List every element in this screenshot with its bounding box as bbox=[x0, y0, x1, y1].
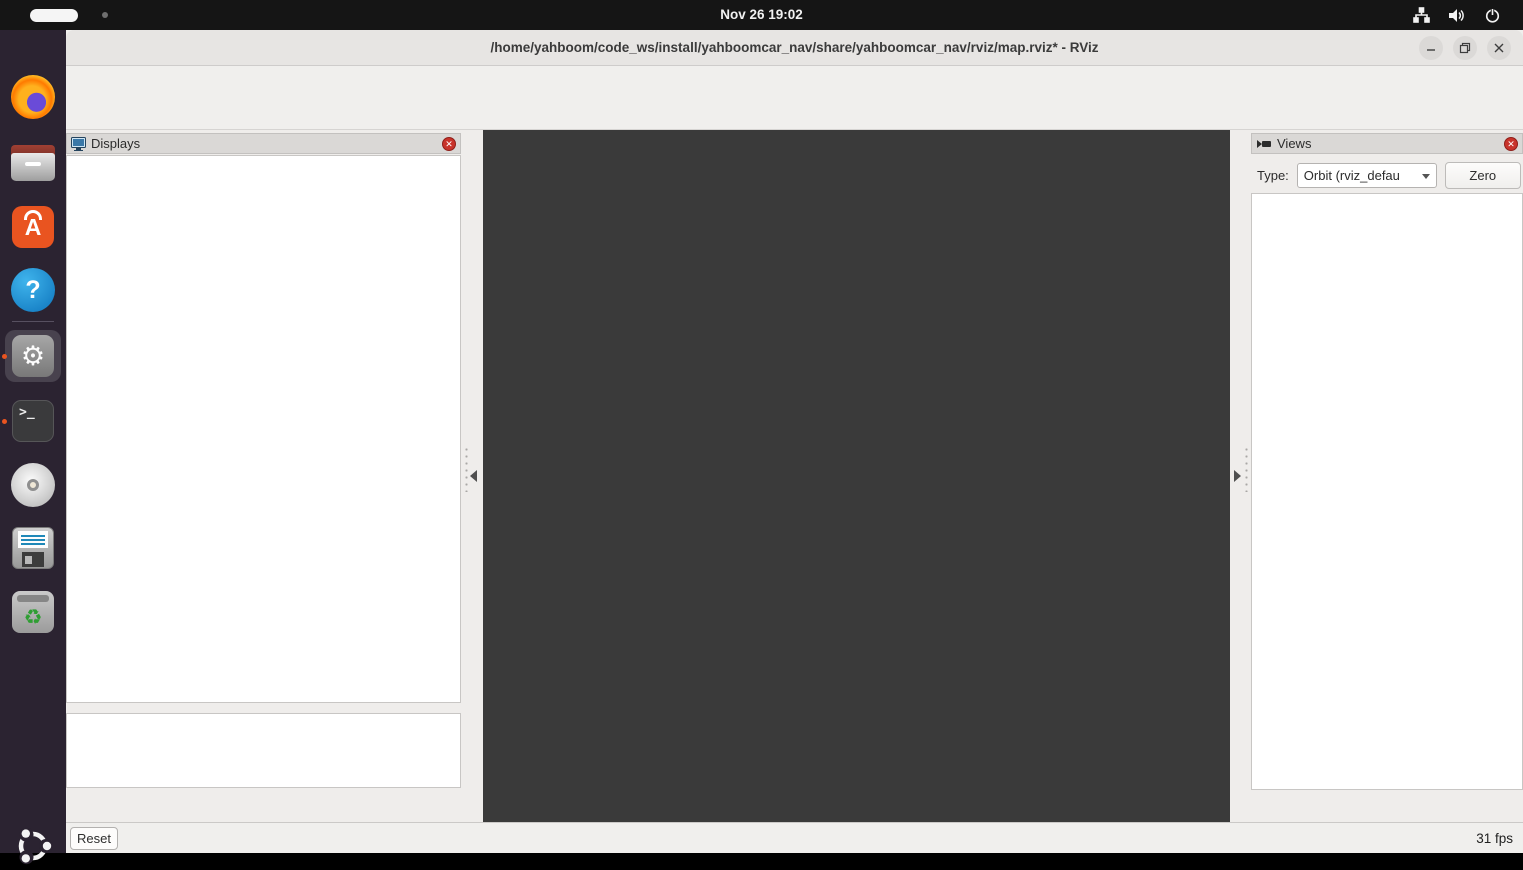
chevron-down-icon bbox=[1422, 174, 1430, 179]
screen: Nov 26 19:02 A bbox=[0, 0, 1523, 853]
dock-terminal[interactable]: >_ bbox=[9, 397, 57, 445]
collapse-right-icon[interactable] bbox=[1234, 470, 1241, 482]
view-type-dropdown[interactable]: Orbit (rviz_defau bbox=[1297, 163, 1437, 188]
dock-settings[interactable]: ⚙ bbox=[5, 330, 61, 382]
gnome-top-bar: Nov 26 19:02 bbox=[0, 0, 1523, 30]
window-title: /home/yahboom/code_ws/install/yahboomcar… bbox=[66, 30, 1523, 66]
floppy-icon bbox=[12, 527, 54, 569]
right-splitter[interactable] bbox=[1230, 130, 1252, 822]
ubuntu-software-icon: A bbox=[12, 206, 54, 248]
dock-files[interactable] bbox=[9, 139, 57, 187]
dock-trash[interactable]: ♻ bbox=[9, 588, 57, 636]
views-close-icon[interactable]: ✕ bbox=[1504, 137, 1518, 151]
type-label: Type: bbox=[1257, 168, 1289, 183]
rviz-scene bbox=[483, 130, 1230, 822]
dock-help[interactable]: ? bbox=[9, 266, 57, 314]
menubar bbox=[66, 66, 1523, 96]
left-splitter[interactable] bbox=[461, 130, 483, 822]
monitor-icon bbox=[71, 137, 86, 151]
displays-buttons bbox=[66, 794, 461, 821]
power-icon bbox=[1484, 7, 1501, 24]
displays-tree bbox=[66, 155, 461, 703]
displays-panel-title: Displays bbox=[91, 136, 442, 151]
disc-icon bbox=[11, 463, 55, 507]
dock-firefox[interactable] bbox=[9, 73, 57, 121]
camera-icon bbox=[1256, 138, 1272, 150]
volume-icon bbox=[1448, 7, 1466, 24]
ubuntu-logo-icon bbox=[13, 826, 53, 866]
titlebar[interactable]: /home/yahboom/code_ws/install/yahboomcar… bbox=[66, 30, 1523, 66]
3d-viewport[interactable] bbox=[483, 130, 1230, 822]
views-buttons bbox=[1253, 796, 1523, 823]
views-panel: Views ✕ Type: Orbit (rviz_defau Zero bbox=[1251, 133, 1523, 822]
firefox-icon bbox=[11, 75, 55, 119]
displays-close-icon[interactable]: ✕ bbox=[442, 137, 456, 151]
minimize-button[interactable] bbox=[1419, 36, 1443, 60]
rviz-window: /home/yahboom/code_ws/install/yahboomcar… bbox=[66, 30, 1523, 853]
displays-panel-header[interactable]: Displays ✕ bbox=[66, 133, 461, 154]
reset-button[interactable]: Reset bbox=[70, 827, 118, 850]
settings-gear-icon: ⚙ bbox=[12, 335, 54, 377]
files-icon bbox=[11, 145, 55, 181]
dock: A ? ⚙ >_ ♻ bbox=[0, 30, 66, 853]
trash-icon: ♻ bbox=[12, 591, 54, 633]
terminal-running-dot bbox=[2, 419, 7, 424]
fps-counter: 31 fps bbox=[1476, 831, 1513, 846]
terminal-icon: >_ bbox=[12, 400, 54, 442]
toolbar bbox=[66, 96, 1523, 130]
dock-separator bbox=[12, 321, 54, 322]
help-icon: ? bbox=[11, 268, 55, 312]
displays-description-box bbox=[66, 713, 461, 788]
displays-panel: Displays ✕ bbox=[66, 133, 461, 822]
views-tree bbox=[1251, 193, 1523, 790]
system-tray[interactable] bbox=[1413, 0, 1501, 30]
views-panel-title: Views bbox=[1277, 136, 1504, 151]
dock-disc-burner[interactable] bbox=[9, 461, 57, 509]
main-area: Displays ✕ bbox=[66, 130, 1523, 822]
dock-ubuntu-software[interactable]: A bbox=[9, 203, 57, 251]
restore-button[interactable] bbox=[1453, 36, 1477, 60]
network-tree-icon bbox=[1413, 7, 1430, 24]
clock[interactable]: Nov 26 19:02 bbox=[0, 0, 1523, 30]
views-panel-header[interactable]: Views ✕ bbox=[1251, 133, 1523, 154]
settings-running-dot bbox=[2, 354, 7, 359]
zero-button[interactable]: Zero bbox=[1445, 162, 1521, 189]
dock-show-apps[interactable] bbox=[9, 822, 57, 870]
collapse-left-icon[interactable] bbox=[470, 470, 477, 482]
dock-floppy-backup[interactable] bbox=[9, 524, 57, 572]
close-button[interactable] bbox=[1487, 36, 1511, 60]
status-bar: Reset 31 fps bbox=[66, 822, 1523, 853]
